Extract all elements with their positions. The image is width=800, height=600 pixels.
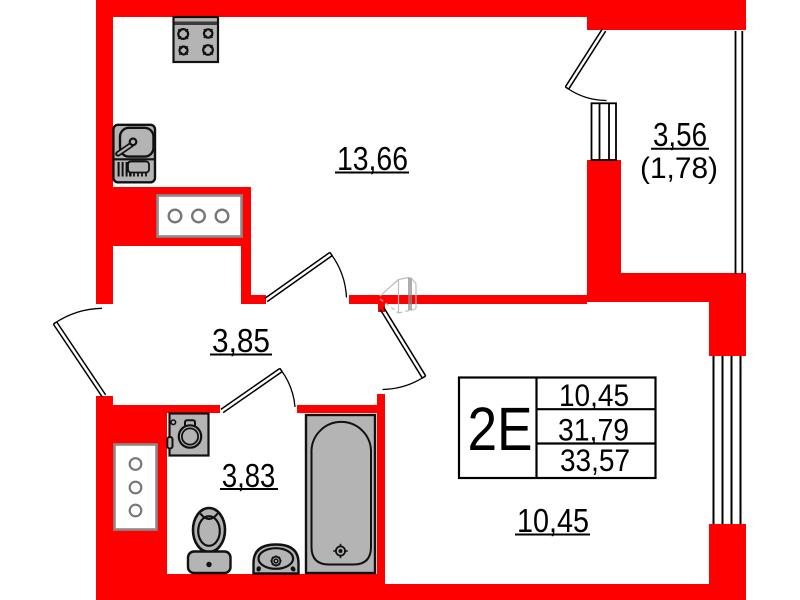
svg-text:10,45: 10,45 xyxy=(559,377,629,413)
svg-text:10,45: 10,45 xyxy=(517,502,589,539)
svg-text:2Е: 2Е xyxy=(467,395,532,463)
svg-text:(1,78): (1,78) xyxy=(640,152,718,185)
svg-text:3,85: 3,85 xyxy=(212,322,270,359)
svg-text:33,57: 33,57 xyxy=(560,442,630,478)
svg-text:13,66: 13,66 xyxy=(337,140,408,177)
svg-text:3,56: 3,56 xyxy=(653,116,707,153)
